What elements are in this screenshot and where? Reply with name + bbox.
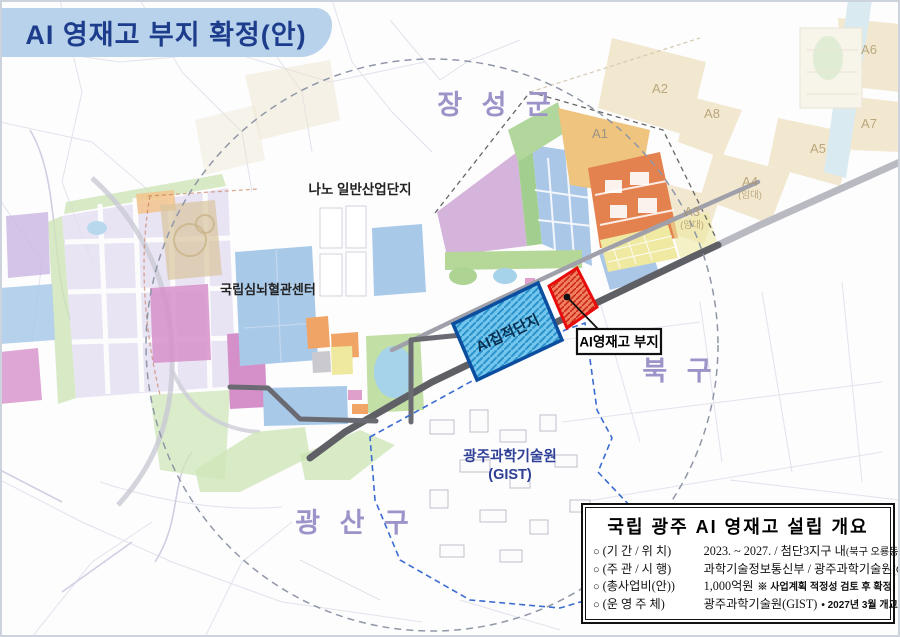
zone-label-a3: A3 (684, 204, 700, 219)
summary-row-operator: ○(운 영 주 체)광주과학기술원(GIST)• 2027년 3월 개교 목표 (593, 596, 883, 614)
summary-box: 국립 광주 AI 영재고 설립 개요 ○(기 간 / 위 치)2023. ~ 2… (581, 503, 895, 624)
zone-label-a2: A2 (652, 81, 668, 96)
page-title: AI 영재고 부지 확정(안) (25, 13, 306, 52)
zone-label-a4: A4 (742, 174, 758, 189)
zone-label-a7: A7 (861, 116, 877, 131)
summary-box-inner: 국립 광주 AI 영재고 설립 개요 ○(기 간 / 위 치)2023. ~ 2… (585, 507, 891, 620)
zone-label-a1: A1 (592, 126, 608, 141)
zone-label-a6: A6 (861, 42, 877, 57)
place-label-nano: 나노 일반산업단지 (308, 181, 411, 197)
summary-title: 국립 광주 AI 영재고 설립 개요 (593, 513, 883, 539)
summary-row-budget: ○(총사업비(안))1,000억원※ 사업계획 적정성 검토 후 확정 (593, 578, 883, 596)
ai-school-callout-label: AI영재고 부지 (579, 334, 658, 350)
zone-label-a3-sub: (임대) (680, 219, 704, 231)
zone-label-a4-sub: (임대) (738, 189, 762, 201)
place-label-heart-center: 국립심뇌혈관센터 (220, 282, 316, 297)
title-banner: AI 영재고 부지 확정(안) (0, 8, 332, 57)
place-label-gist2: (GIST) (488, 467, 532, 483)
region-label-jangseong: 장 성 군 (437, 90, 557, 120)
region-label-bukgu: 북 구 (642, 356, 717, 386)
place-label-gist: 광주과학기술원 (463, 447, 556, 465)
summary-row-period: ○(기 간 / 위 치)2023. ~ 2027. / 첨단3지구 내(북구 오… (593, 543, 883, 561)
site-ai-cluster: AI집적단지 (453, 283, 562, 380)
ai-school-callout: AI영재고 부지 (577, 329, 661, 354)
zone-label-a8: A8 (704, 106, 720, 121)
zone-label-a5: A5 (810, 141, 826, 156)
region-label-gwangsan: 광 산 구 (295, 508, 415, 538)
summary-row-agency: ○(주 관 / 시 행)과학기술정보통신부 / 광주과학기술원(GIST) (593, 561, 883, 579)
